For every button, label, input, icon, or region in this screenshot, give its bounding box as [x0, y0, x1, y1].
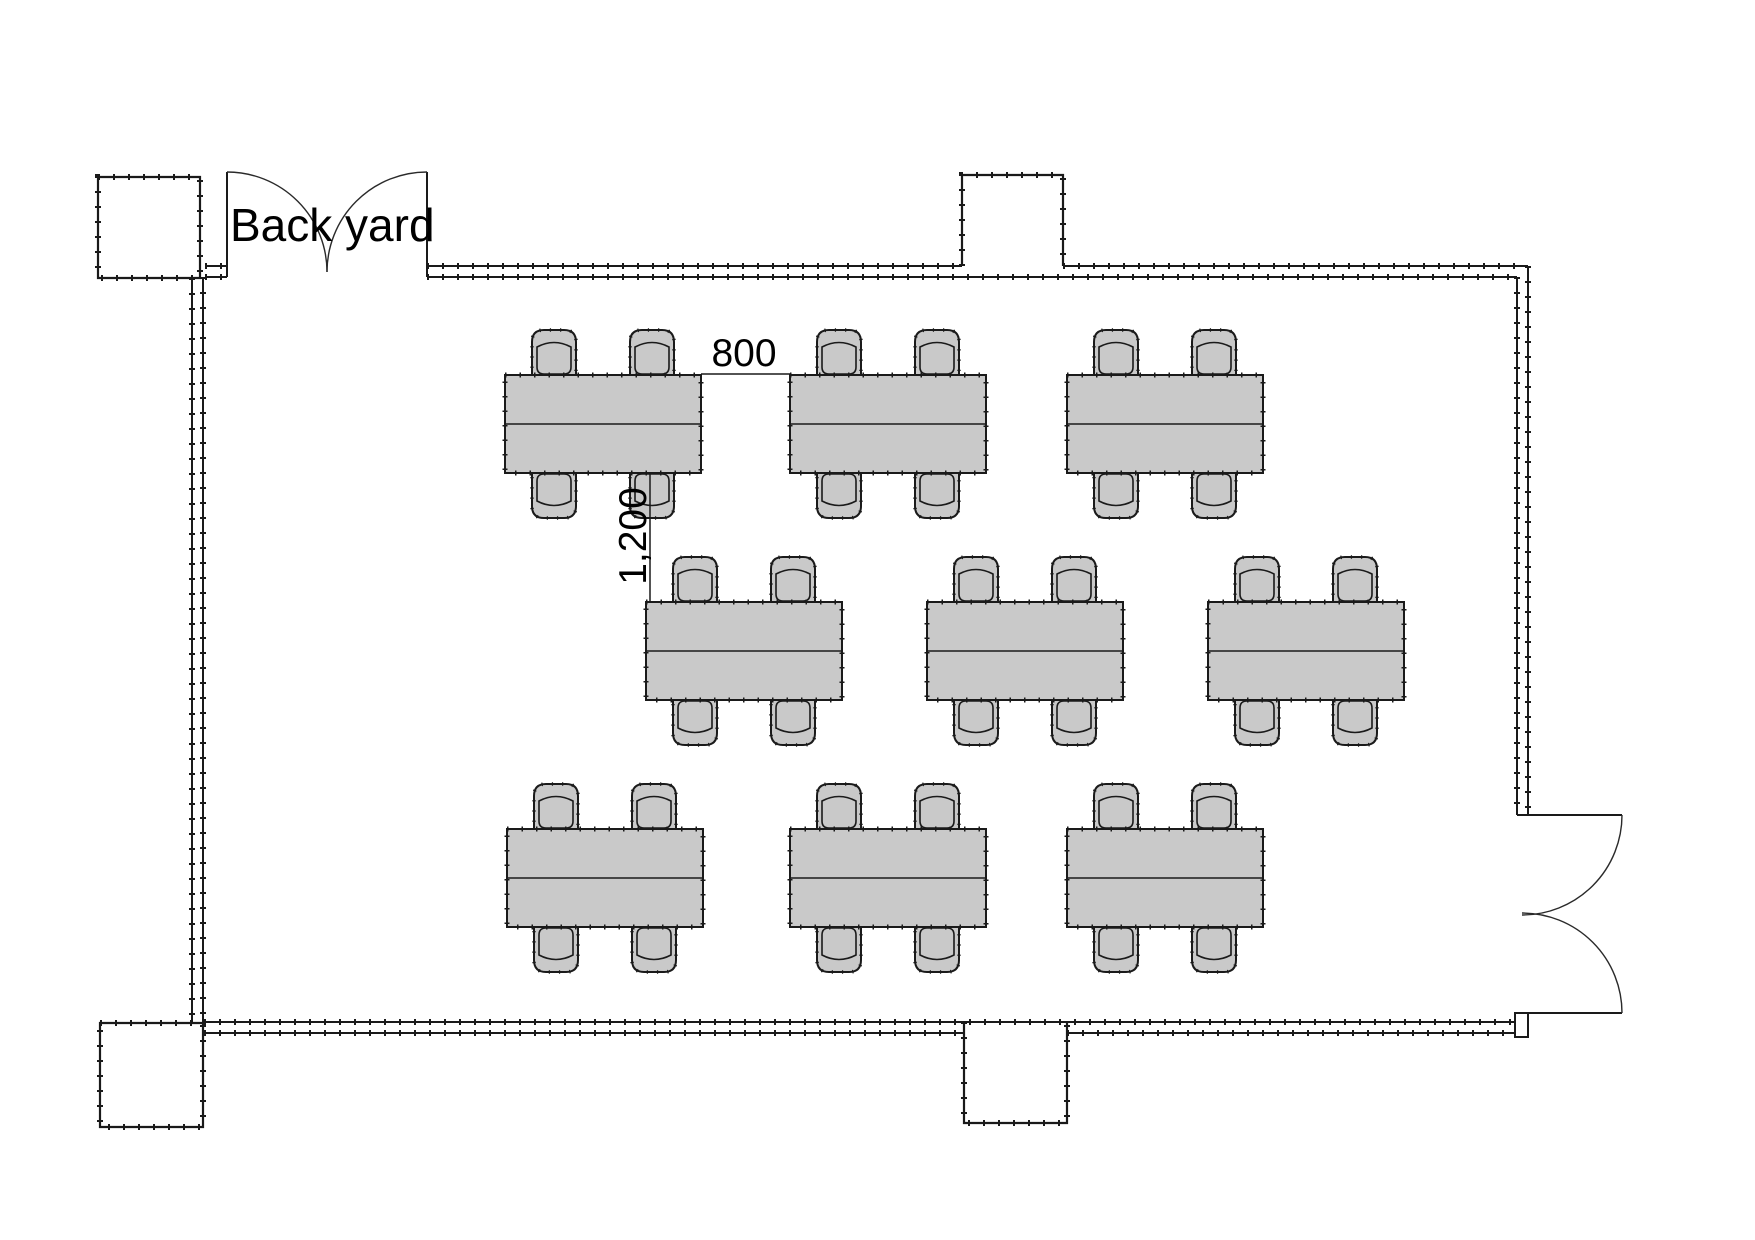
- dim-800-label: 800: [711, 332, 776, 375]
- chair: [673, 557, 717, 605]
- chair: [954, 557, 998, 605]
- chair: [1094, 784, 1138, 832]
- chair: [532, 330, 576, 378]
- chair: [915, 330, 959, 378]
- door-jamb: [1515, 1013, 1528, 1037]
- chair: [1235, 557, 1279, 605]
- chair: [771, 697, 815, 745]
- pillar: [962, 175, 1063, 266]
- pillar: [100, 1023, 203, 1127]
- chair: [534, 924, 578, 972]
- pillar: [964, 1022, 1067, 1123]
- chair: [817, 330, 861, 378]
- chair: [1235, 697, 1279, 745]
- pillar: [98, 177, 200, 278]
- chair: [1192, 330, 1236, 378]
- furniture-layer: [505, 330, 1404, 972]
- floor-plan-canvas: Back yard 800 1,200: [0, 0, 1755, 1240]
- floor-plan-drawing: Back yard 800 1,200: [0, 0, 1755, 1240]
- entrance-double-door-swing-arc: [1522, 815, 1622, 915]
- chair: [1094, 330, 1138, 378]
- entrance-double-door-swing-arc: [1522, 913, 1622, 1013]
- chair: [1333, 697, 1377, 745]
- chair: [1094, 470, 1138, 518]
- chair: [632, 784, 676, 832]
- chair: [1333, 557, 1377, 605]
- chair: [817, 784, 861, 832]
- chair: [915, 784, 959, 832]
- chair: [1094, 924, 1138, 972]
- chair: [632, 924, 676, 972]
- chair: [1192, 470, 1236, 518]
- chair: [817, 470, 861, 518]
- chair: [1052, 697, 1096, 745]
- chair: [534, 784, 578, 832]
- chair: [915, 470, 959, 518]
- chair: [954, 697, 998, 745]
- chair: [1052, 557, 1096, 605]
- dim-1200-label: 1,200: [612, 487, 655, 585]
- chair: [1192, 784, 1236, 832]
- chair: [817, 924, 861, 972]
- backyard-label: Back yard: [230, 199, 435, 251]
- chair: [1192, 924, 1236, 972]
- chair: [532, 470, 576, 518]
- chair: [915, 924, 959, 972]
- chair: [630, 330, 674, 378]
- chair: [771, 557, 815, 605]
- chair: [673, 697, 717, 745]
